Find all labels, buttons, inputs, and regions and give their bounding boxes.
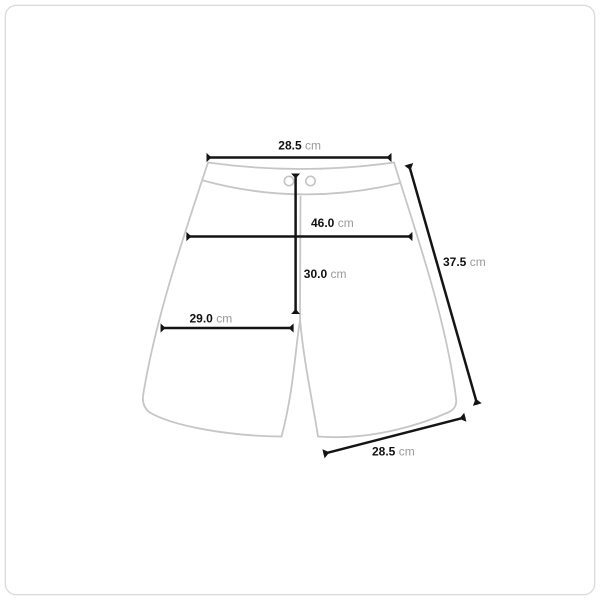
svg-text:29.0 cm: 29.0 cm: [190, 311, 233, 325]
svg-text:37.5 cm: 37.5 cm: [443, 255, 486, 269]
svg-text:28.5 cm: 28.5 cm: [278, 139, 321, 153]
svg-text:30.0 cm: 30.0 cm: [304, 267, 347, 281]
svg-text:28.5 cm: 28.5 cm: [372, 445, 415, 459]
svg-text:46.0 cm: 46.0 cm: [311, 216, 354, 230]
